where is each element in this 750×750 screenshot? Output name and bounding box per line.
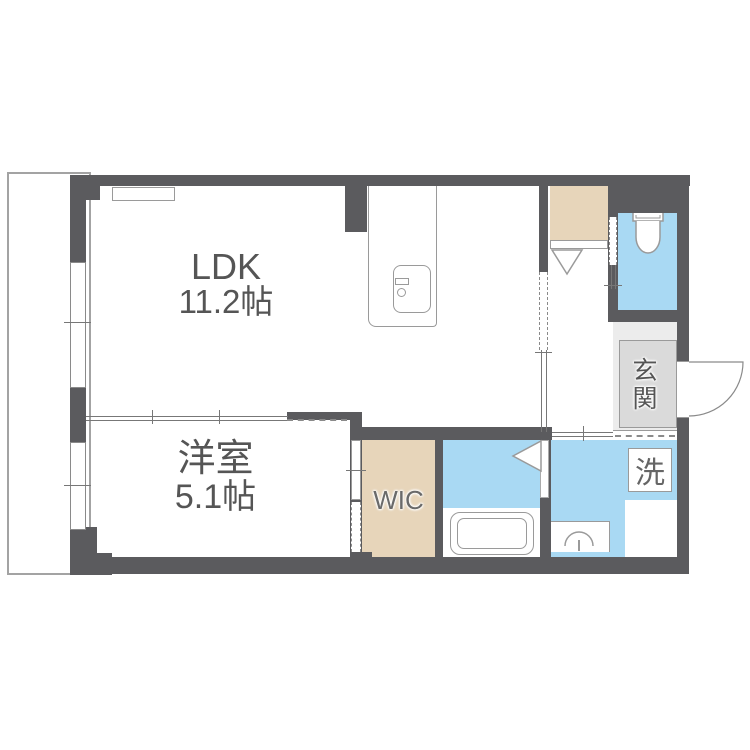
slider-tick-1: [152, 410, 153, 424]
ldk-label: LDK 11.2帖: [100, 249, 352, 320]
ldk-hall-door-open: [539, 272, 548, 350]
hall-wash-door-tick: [583, 426, 584, 441]
entrance-door-arc-icon: [689, 355, 749, 423]
wall-kitchen-pillar: [345, 175, 367, 232]
toilet-icon: [630, 213, 666, 258]
closet-door-triangle-icon: [551, 249, 583, 275]
ldk-counter: [112, 187, 175, 201]
laundry-label: 洗: [635, 448, 665, 492]
slider-line-top: [86, 416, 288, 417]
bathtub-inner: [457, 518, 527, 549]
slider-open-dashed: [287, 419, 347, 421]
slider-tick-2: [219, 410, 220, 424]
closet-shelf-band: [550, 240, 608, 249]
ldk-room-name: LDK: [100, 249, 352, 285]
kitchen-knob-icon: [397, 288, 406, 297]
wic-door-tick: [346, 470, 366, 471]
window-ldk-tick: [64, 322, 91, 323]
kitchen-faucet-icon: [395, 278, 409, 285]
entrance-label: 玄関: [633, 344, 661, 426]
wic-label: WIC: [362, 485, 435, 516]
ldk-hall-door-tick: [535, 352, 552, 353]
window-ldk: [70, 262, 86, 388]
wall-top-right-block: [608, 175, 689, 213]
floor-plan: 洗 LDK 11.2帖 洋室 5.1帖 WIC 玄関: [0, 0, 750, 750]
wall-top: [70, 175, 690, 186]
slider-line-bottom: [86, 420, 288, 421]
hall-closet: [550, 183, 608, 240]
wall-above-wet-area: [350, 427, 552, 440]
wic-door-open: [351, 502, 361, 552]
window-western: [70, 442, 86, 530]
ldk-hall-door-line2: [546, 350, 547, 432]
western-room-label: 洋室 5.1帖: [88, 440, 343, 516]
washbasin-icon: [563, 528, 597, 552]
western-room-name: 洋室: [88, 440, 343, 480]
window-western-tick: [64, 485, 91, 486]
toilet-door-tick: [604, 285, 622, 286]
western-room-size: 5.1帖: [88, 480, 343, 516]
washing-machine-box: 洗: [628, 448, 672, 492]
entrance-door-opening: [677, 361, 689, 418]
wall-bottom-left-corner: [70, 527, 97, 575]
wall-ldk-hall: [539, 175, 548, 272]
wall-below-toilet: [608, 310, 689, 322]
wall-wic-door-foot: [351, 552, 372, 561]
wall-wic-bath: [435, 440, 443, 557]
ldk-hall-door-line1: [541, 350, 542, 432]
toilet-door-open: [609, 217, 617, 265]
ldk-room-size: 11.2帖: [100, 285, 352, 320]
wall-bottom: [97, 557, 689, 574]
bath-door-triangle-icon: [512, 440, 542, 473]
entrance-step-dashed: [615, 435, 675, 437]
